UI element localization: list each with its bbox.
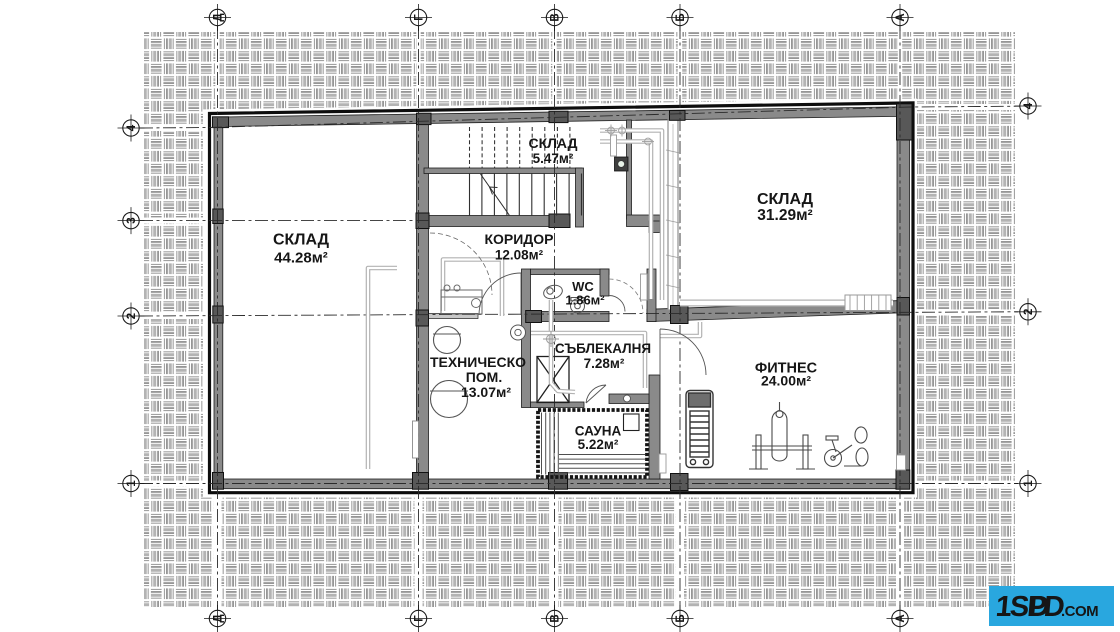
svg-text:СКЛАД: СКЛАД — [273, 232, 330, 249]
svg-text:7.28м²: 7.28м² — [584, 356, 625, 371]
svg-text:2: 2 — [1023, 309, 1035, 315]
svg-text:4: 4 — [126, 124, 138, 131]
svg-text:24.00м²: 24.00м² — [761, 373, 811, 389]
svg-text:1.86м²: 1.86м² — [565, 293, 605, 308]
svg-text:Б: Б — [675, 614, 687, 622]
svg-text:Г: Г — [414, 14, 426, 21]
svg-text:СЪБЛЕКАЛНЯ: СЪБЛЕКАЛНЯ — [555, 341, 651, 356]
svg-text:ПОМ.: ПОМ. — [466, 369, 503, 385]
svg-text:А: А — [895, 13, 907, 21]
svg-text:13.07м²: 13.07м² — [461, 384, 511, 400]
svg-text:5.22м²: 5.22м² — [578, 437, 619, 452]
svg-text:Д: Д — [213, 13, 225, 21]
svg-text:1: 1 — [126, 480, 138, 487]
svg-text:Б: Б — [675, 13, 687, 21]
svg-text:5.47м²: 5.47м² — [533, 151, 574, 166]
svg-text:ТЕХНИЧЕСКО: ТЕХНИЧЕСКО — [430, 354, 526, 370]
svg-text:1: 1 — [1023, 480, 1035, 487]
svg-text:3: 3 — [126, 217, 138, 223]
svg-text:КОРИДОР: КОРИДОР — [484, 231, 553, 247]
svg-text:44.28м²: 44.28м² — [274, 250, 328, 267]
svg-text:В: В — [550, 614, 562, 622]
svg-text:12.08м²: 12.08м² — [495, 248, 544, 263]
svg-text:А: А — [895, 614, 907, 622]
svg-text:Д: Д — [213, 614, 225, 622]
svg-text:Г: Г — [414, 615, 426, 622]
svg-text:В: В — [550, 13, 562, 21]
svg-text:4: 4 — [1023, 102, 1035, 109]
svg-text:СКЛАД: СКЛАД — [528, 135, 577, 151]
svg-text:2: 2 — [126, 313, 138, 319]
svg-text:СКЛАД: СКЛАД — [757, 191, 814, 208]
svg-text:.COM: .COM — [1061, 603, 1098, 620]
svg-text:31.29м²: 31.29м² — [757, 207, 812, 224]
